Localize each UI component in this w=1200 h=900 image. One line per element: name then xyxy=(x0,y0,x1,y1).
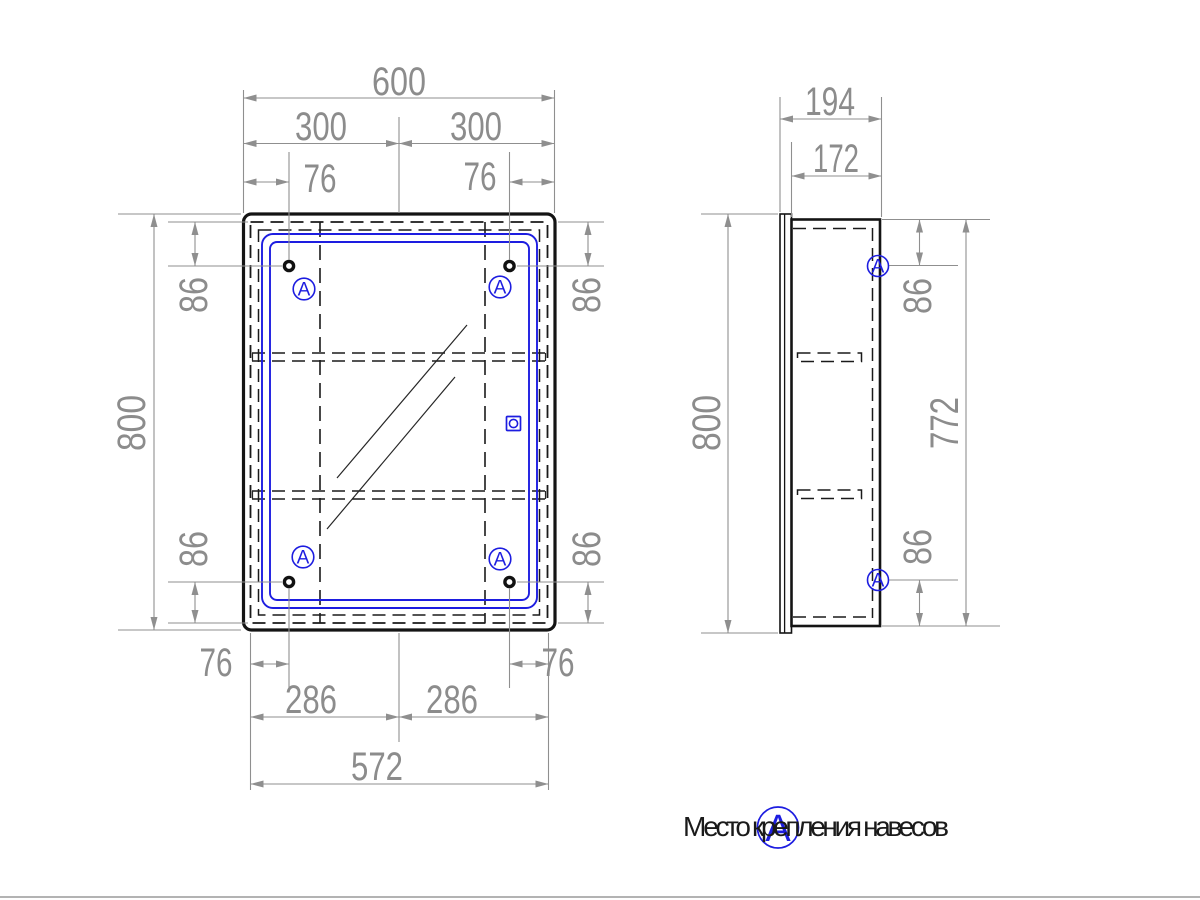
dim-front-width-right-half: 300 xyxy=(450,105,502,149)
svg-text:A: A xyxy=(872,257,885,278)
marker-a-front-bottom-right: A xyxy=(489,548,511,570)
front-right-dimensions: 86 86 xyxy=(517,222,609,623)
dim-front-bottom-hole-offset-left: 76 xyxy=(200,641,233,685)
mirror-hatch-line xyxy=(327,377,455,529)
legend-label: Место крепления навесов xyxy=(683,811,949,842)
marker-a-side-top: A xyxy=(868,256,889,278)
svg-text:A: A xyxy=(494,550,507,571)
marker-a-front-top-left: A xyxy=(293,278,315,300)
dim-front-width-left-half: 300 xyxy=(295,105,347,149)
svg-text:A: A xyxy=(494,278,507,299)
dim-side-depth-total: 194 xyxy=(805,80,855,124)
dim-side-bottom-hinge-offset: 86 xyxy=(896,529,940,565)
dim-side-top-hinge-offset: 86 xyxy=(896,278,940,314)
dim-side-height-total: 800 xyxy=(685,395,729,451)
mirror-hatch-line xyxy=(337,325,467,478)
side-shelf-top xyxy=(798,353,862,362)
dim-side-depth-carcass: 172 xyxy=(813,137,859,181)
svg-text:A: A xyxy=(298,280,311,301)
svg-text:A: A xyxy=(872,571,885,592)
side-door-strip xyxy=(780,214,792,633)
marker-a-front-bottom-left: A xyxy=(292,546,314,568)
dim-front-carcass-width: 572 xyxy=(351,745,403,789)
side-shelf-bottom xyxy=(798,490,862,499)
dim-front-bottom-left-half: 286 xyxy=(285,678,337,722)
front-shelf-bottom xyxy=(252,491,546,499)
svg-text:A: A xyxy=(297,548,310,569)
dim-front-bottom-hole-offset-right: 76 xyxy=(542,641,575,685)
front-shelf-top xyxy=(252,353,546,361)
drawing-canvas: A A A A A xyxy=(0,0,1200,900)
dim-front-right-bottom-hole-offset: 86 xyxy=(565,531,609,567)
dim-front-right-top-hole-offset: 86 xyxy=(565,277,609,313)
front-door-outline xyxy=(244,214,556,630)
front-view: A A A A xyxy=(244,214,556,630)
dim-front-bottom-right-half: 286 xyxy=(426,678,478,722)
dim-front-top-hole-offset-left: 76 xyxy=(304,157,337,201)
mounting-hole xyxy=(284,577,293,586)
dim-front-width-total: 600 xyxy=(372,60,426,104)
mounting-hole xyxy=(505,261,514,270)
marker-a-side-bottom: A xyxy=(868,570,889,592)
dim-front-top-hole-offset-right: 76 xyxy=(464,155,497,199)
side-carcass-outline xyxy=(792,220,881,627)
side-dimensions: 194 172 800 86 86 772 xyxy=(685,80,1000,633)
dim-front-left-bottom-hole-offset: 86 xyxy=(172,531,216,567)
dim-front-left-top-hole-offset: 86 xyxy=(172,277,216,313)
front-bottom-dimensions: 76 76 286 286 572 xyxy=(200,588,575,790)
side-view: A A xyxy=(780,214,889,633)
mounting-hole xyxy=(505,577,514,586)
dim-side-carcass-height: 772 xyxy=(923,397,967,449)
marker-a-front-top-right: A xyxy=(489,276,511,298)
dim-front-height-total: 800 xyxy=(110,395,154,451)
sensor-switch-icon xyxy=(507,417,521,431)
legend: A Место крепления навесов xyxy=(683,807,949,850)
technical-drawing: A A A A A xyxy=(0,0,1200,900)
mounting-hole xyxy=(284,261,293,270)
front-left-dimensions: 800 86 86 xyxy=(110,214,282,630)
